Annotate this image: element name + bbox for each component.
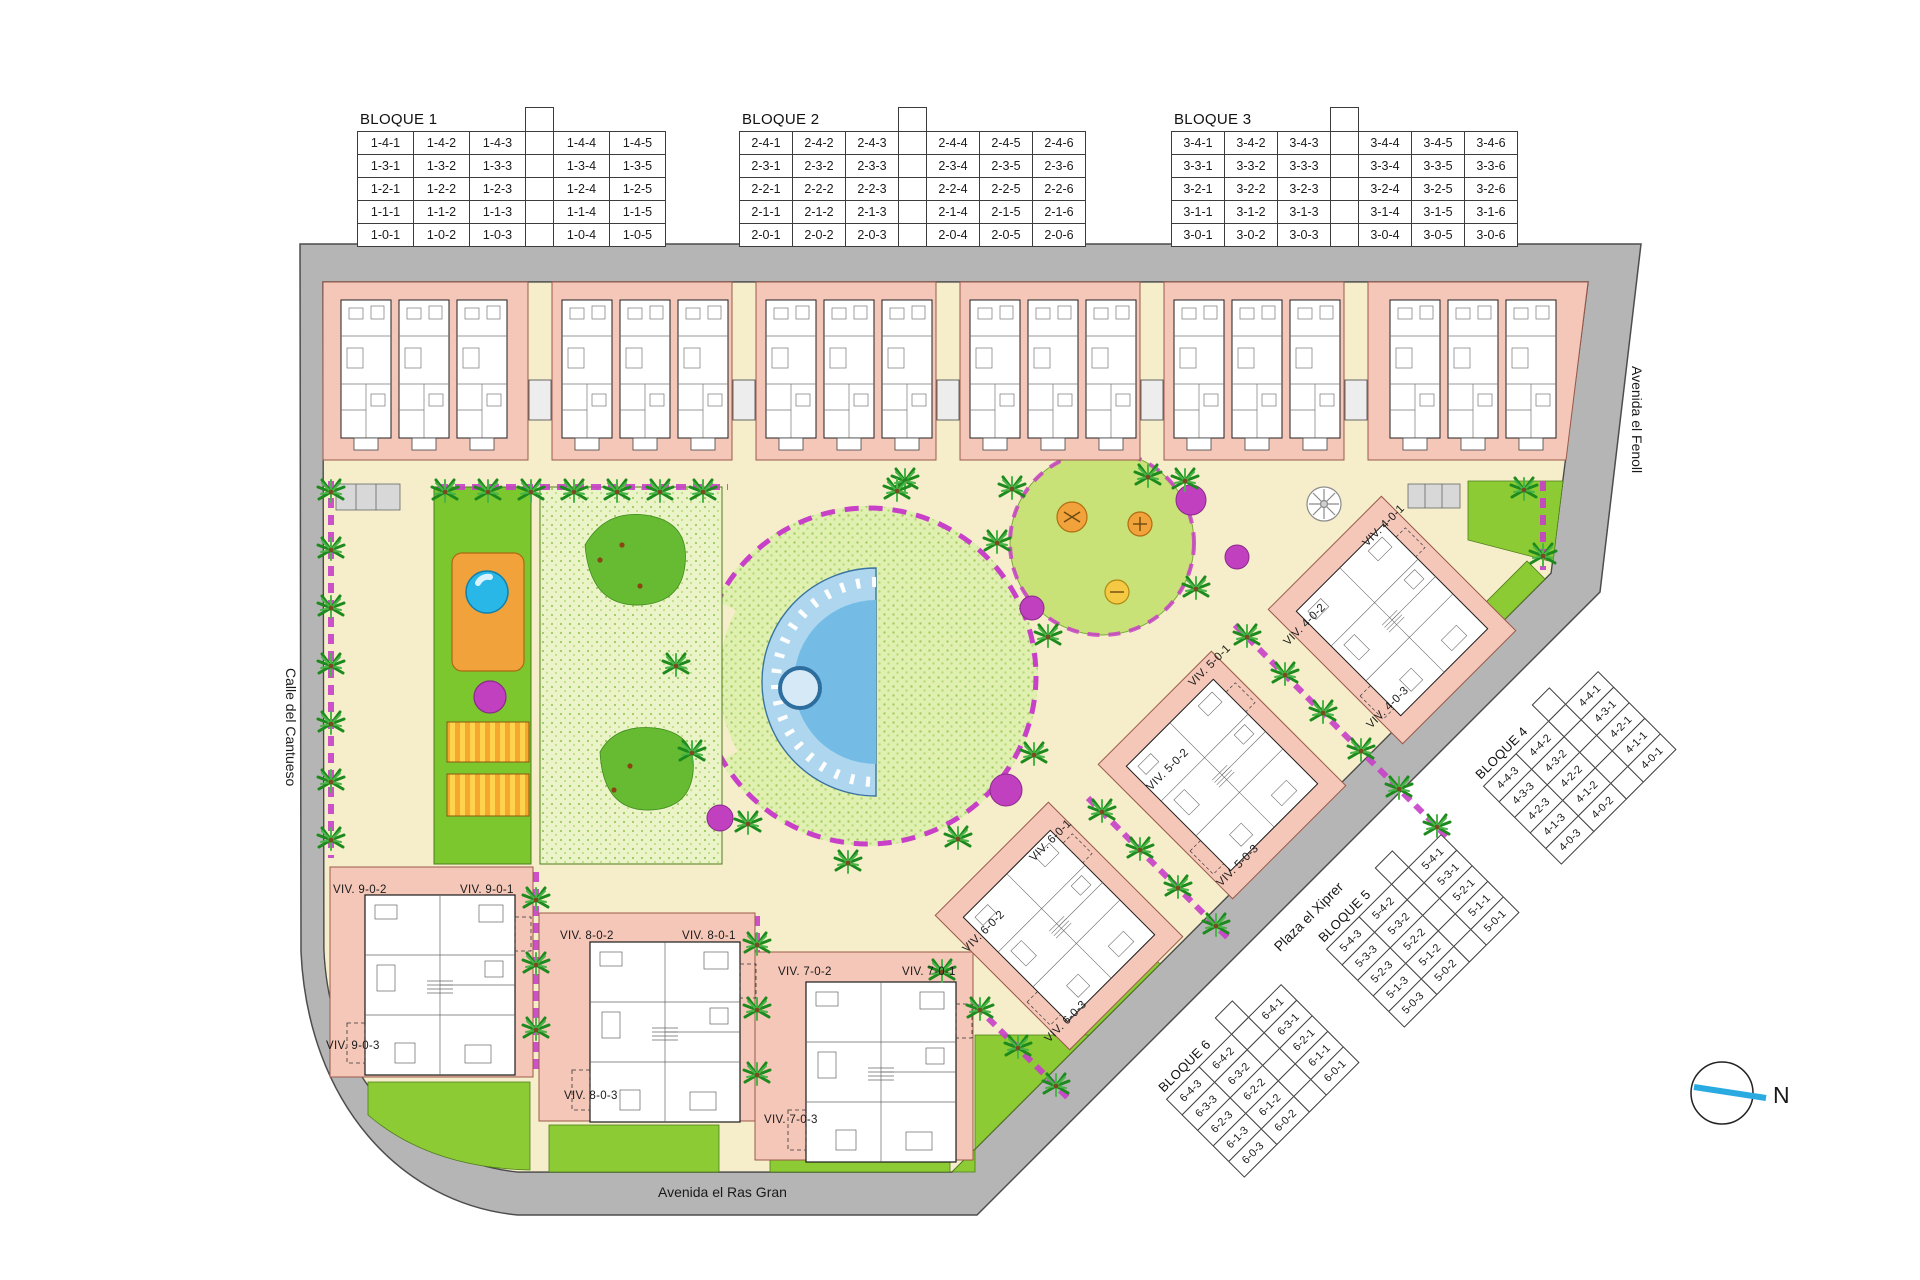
unit-cell: 2-0-5	[979, 223, 1033, 247]
unit-cell: 3-2-4	[1358, 177, 1412, 201]
viv-label: VIV. 8-0-3	[564, 1090, 618, 1102]
viv-label: VIV. 7-0-1	[902, 966, 956, 978]
unit-cell: 2-0-6	[1032, 223, 1086, 247]
unit-cell: 1-0-5	[609, 223, 666, 247]
stair-gap-cell	[1330, 107, 1359, 132]
unit-cell: 3-0-2	[1224, 223, 1278, 247]
unit-cell: 1-1-2	[413, 200, 470, 224]
unit-cell: 2-2-3	[845, 177, 899, 201]
unit-cell: 2-2-4	[926, 177, 980, 201]
flower-bed	[1225, 545, 1249, 569]
stair-gap-cell	[898, 107, 927, 132]
unit-cell: 1-3-5	[609, 154, 666, 178]
unit-cell: 3-4-5	[1411, 131, 1465, 155]
unit-cell: 1-3-1	[357, 154, 414, 178]
unit-cell: 3-0-4	[1358, 223, 1412, 247]
unit-cell: 2-1-5	[979, 200, 1033, 224]
unit-cell: 1-1-1	[357, 200, 414, 224]
unit-cell: 2-4-3	[845, 131, 899, 155]
east-garden	[540, 487, 722, 864]
north-needle	[1694, 1087, 1766, 1098]
unit-cell: 2-4-5	[979, 131, 1033, 155]
stair-gap-cell	[525, 223, 554, 247]
stair-gap-cell	[898, 177, 927, 201]
stair-gap-cell	[898, 200, 927, 224]
street-label-left: Calle del Cantueso	[283, 668, 299, 787]
unit-cell: 3-0-1	[1171, 223, 1225, 247]
flower-bed	[1020, 596, 1044, 620]
stair-gap-cell	[1330, 223, 1359, 247]
unit-cell: 3-2-1	[1171, 177, 1225, 201]
north-label: N	[1773, 1082, 1790, 1108]
unit-cell: 2-2-5	[979, 177, 1033, 201]
viv-label: VIV. 9-0-2	[333, 884, 387, 896]
viv-label: VIV. 8-0-2	[560, 930, 614, 942]
bloque-title: BLOQUE 3	[1174, 111, 1251, 128]
unit-cell: 3-3-3	[1277, 154, 1331, 178]
unit-cell: 1-4-4	[553, 131, 610, 155]
viv-label: VIV. 9-0-3	[326, 1040, 380, 1052]
viv-label: VIV. 9-0-1	[460, 884, 514, 896]
unit-cell: 1-2-5	[609, 177, 666, 201]
stair-gap-cell	[1330, 131, 1359, 155]
unit-cell: 2-1-4	[926, 200, 980, 224]
unit-cell: 3-2-3	[1277, 177, 1331, 201]
unit-cell: 1-2-3	[469, 177, 526, 201]
unit-cell: 3-3-6	[1464, 154, 1518, 178]
unit-cell: 2-2-2	[792, 177, 846, 201]
unit-cell: 2-1-2	[792, 200, 846, 224]
unit-cell: 2-1-3	[845, 200, 899, 224]
bloque3-table: BLOQUE 33-4-13-4-23-4-33-4-43-4-53-4-63-…	[1172, 108, 1518, 247]
unit-cell: 3-3-4	[1358, 154, 1412, 178]
pergola	[447, 722, 529, 762]
stair-gap-cell	[898, 154, 927, 178]
unit-cell: 1-0-1	[357, 223, 414, 247]
unit-cell: 2-0-1	[739, 223, 793, 247]
west-garden	[434, 487, 531, 864]
unit-cell: 2-4-1	[739, 131, 793, 155]
bloque1-table: BLOQUE 11-4-11-4-21-4-31-4-41-4-51-3-11-…	[358, 108, 666, 247]
unit-cell: 3-4-1	[1171, 131, 1225, 155]
unit-cell: 3-0-6	[1464, 223, 1518, 247]
unit-cell: 2-1-1	[739, 200, 793, 224]
unit-cell: 2-2-6	[1032, 177, 1086, 201]
unit-cell: 3-3-5	[1411, 154, 1465, 178]
unit-cell: 3-1-2	[1224, 200, 1278, 224]
unit-cell: 3-0-5	[1411, 223, 1465, 247]
unit-cell: 1-1-4	[553, 200, 610, 224]
unit-cell: 3-3-1	[1171, 154, 1225, 178]
stair-gap-cell	[525, 154, 554, 178]
unit-cell: 3-4-3	[1277, 131, 1331, 155]
bloque-title: BLOQUE 1	[360, 111, 437, 128]
stair-gap-cell	[525, 200, 554, 224]
unit-cell: 2-4-4	[926, 131, 980, 155]
unit-cell: 3-4-4	[1358, 131, 1412, 155]
pool-island	[780, 668, 820, 708]
floorplan-viv7	[788, 982, 972, 1162]
unit-cell: 3-4-6	[1464, 131, 1518, 155]
unit-cell: 2-0-2	[792, 223, 846, 247]
bloque2-table: BLOQUE 22-4-12-4-22-4-32-4-42-4-52-4-62-…	[740, 108, 1086, 247]
unit-cell: 2-1-6	[1032, 200, 1086, 224]
unit-cell: 2-0-4	[926, 223, 980, 247]
stair-gap-cell	[1330, 154, 1359, 178]
unit-cell: 3-4-2	[1224, 131, 1278, 155]
stair-gap-cell	[898, 131, 927, 155]
unit-cell: 1-4-5	[609, 131, 666, 155]
unit-cell: 1-1-3	[469, 200, 526, 224]
viv-label: VIV. 7-0-3	[764, 1114, 818, 1126]
stair-gap-cell	[1330, 200, 1359, 224]
unit-cell: 3-1-6	[1464, 200, 1518, 224]
street-label-right: Avenida el Fenoll	[1629, 366, 1645, 473]
unit-cell: 2-3-3	[845, 154, 899, 178]
unit-cell: 2-3-6	[1032, 154, 1086, 178]
unit-cell: 3-0-3	[1277, 223, 1331, 247]
pergola	[447, 774, 529, 816]
flower-bed	[474, 681, 506, 713]
flower-bed	[1176, 485, 1206, 515]
unit-cell: 2-4-6	[1032, 131, 1086, 155]
unit-cell: 1-2-2	[413, 177, 470, 201]
unit-cell: 3-3-2	[1224, 154, 1278, 178]
unit-cell: 2-0-3	[845, 223, 899, 247]
unit-cell: 1-4-1	[357, 131, 414, 155]
stair-gap-cell	[1330, 177, 1359, 201]
unit-cell: 1-3-3	[469, 154, 526, 178]
unit-cell: 3-1-3	[1277, 200, 1331, 224]
unit-cell: 1-0-2	[413, 223, 470, 247]
viv-label: VIV. 7-0-2	[778, 966, 832, 978]
unit-cell: 1-3-2	[413, 154, 470, 178]
unit-cell: 1-0-3	[469, 223, 526, 247]
site-plan-page: VIV. 9-0-2 VIV. 9-0-1 VIV. 9-0-3 VIV. 8-…	[0, 0, 1920, 1280]
unit-cell: 1-3-4	[553, 154, 610, 178]
unit-cell: 1-2-4	[553, 177, 610, 201]
north-indicator: N	[1691, 1062, 1790, 1124]
stair-gap-cell	[525, 107, 554, 132]
unit-cell: 2-2-1	[739, 177, 793, 201]
unit-cell: 1-0-4	[553, 223, 610, 247]
unit-cell: 1-2-1	[357, 177, 414, 201]
unit-cell: 2-3-2	[792, 154, 846, 178]
unit-cell: 1-4-3	[469, 131, 526, 155]
unit-cell: 3-1-4	[1358, 200, 1412, 224]
fountain	[1307, 487, 1341, 521]
unit-cell: 3-2-5	[1411, 177, 1465, 201]
unit-cell: 2-4-2	[792, 131, 846, 155]
unit-cell: 3-1-5	[1411, 200, 1465, 224]
unit-cell: 3-2-2	[1224, 177, 1278, 201]
street-label-bottom: Avenida el Ras Gran	[658, 1184, 787, 1200]
stair-gap-cell	[525, 177, 554, 201]
unit-cell: 3-1-1	[1171, 200, 1225, 224]
unit-cell: 3-2-6	[1464, 177, 1518, 201]
unit-cell: 1-1-5	[609, 200, 666, 224]
unit-cell: 2-3-5	[979, 154, 1033, 178]
unit-cell: 1-4-2	[413, 131, 470, 155]
stair-gap-cell	[898, 223, 927, 247]
bloque-title: BLOQUE 2	[742, 111, 819, 128]
unit-cell: 2-3-4	[926, 154, 980, 178]
stair-gap-cell	[525, 131, 554, 155]
viv-label: VIV. 8-0-1	[682, 930, 736, 942]
unit-cell: 2-3-1	[739, 154, 793, 178]
